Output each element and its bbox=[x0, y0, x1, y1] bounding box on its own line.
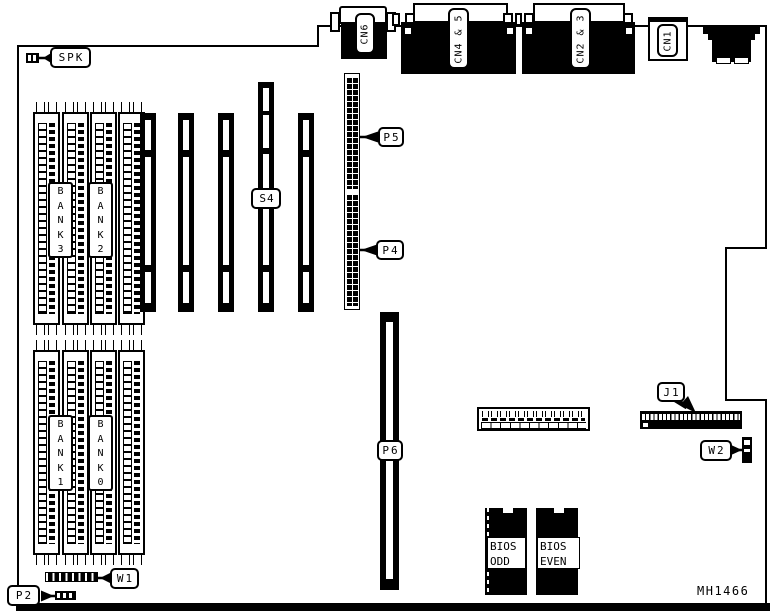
p2-header bbox=[55, 591, 76, 600]
p5-callout-arrow-icon bbox=[357, 132, 378, 143]
cn4-5-label: CN4 & 5 bbox=[448, 8, 469, 69]
cn4-5-pin-right bbox=[507, 28, 513, 34]
cn1-label: CN1 bbox=[657, 24, 678, 57]
board-bottom-edge bbox=[16, 603, 770, 611]
j1-pin1-marker bbox=[643, 423, 648, 427]
w2-jumper bbox=[742, 437, 752, 463]
cn2-3-pin-left bbox=[526, 28, 532, 34]
motherboard-diagram: CN6 CN4 & 5 CN2 & 3 CN1 SPK B A N K 3 bbox=[0, 0, 773, 616]
chip-notch bbox=[503, 508, 513, 513]
cn6-label: CN6 bbox=[355, 13, 375, 54]
simm-socket bbox=[118, 350, 145, 555]
cn2-3-label: CN2 & 3 bbox=[570, 8, 591, 69]
p2-label: P2 bbox=[7, 585, 40, 606]
p5-label: P5 bbox=[378, 127, 404, 147]
spk-header bbox=[26, 53, 39, 63]
expansion-slot bbox=[140, 113, 156, 312]
spk-label: SPK bbox=[50, 47, 91, 68]
expansion-slot bbox=[298, 113, 314, 312]
bios-even-label: BIOS EVEN bbox=[537, 537, 580, 569]
cn2-3-pin-right bbox=[626, 28, 632, 34]
edge-tab bbox=[392, 13, 400, 26]
w1-jumper-block bbox=[45, 572, 98, 582]
part-number: MH1466 bbox=[697, 584, 749, 598]
s4-label: S4 bbox=[251, 188, 281, 209]
bank1-label: B A N K 1 bbox=[48, 415, 73, 491]
p6-label: P6 bbox=[377, 440, 403, 461]
keyboard-pin-block bbox=[734, 55, 749, 64]
bank3-label: B A N K 3 bbox=[48, 182, 73, 258]
power-connector bbox=[477, 407, 590, 431]
expansion-slot bbox=[178, 113, 194, 312]
p4-label: P4 bbox=[376, 240, 404, 260]
j1-header bbox=[640, 411, 742, 429]
w2-label: W2 bbox=[700, 440, 732, 461]
expansion-slot bbox=[218, 113, 234, 312]
cn6-left-tab bbox=[330, 12, 340, 32]
j1-label: J1 bbox=[657, 382, 685, 402]
bank2-label: B A N K 2 bbox=[88, 182, 113, 258]
edge-tab bbox=[515, 13, 522, 26]
w1-callout-arrow-icon bbox=[96, 573, 111, 584]
bank0-label: B A N K 0 bbox=[88, 415, 113, 491]
p5-p4-pin-header bbox=[344, 73, 360, 310]
cn4-5-pin-left bbox=[405, 28, 411, 34]
w1-label: W1 bbox=[110, 568, 139, 589]
bios-odd-label: BIOS ODD bbox=[487, 537, 526, 569]
chip-notch bbox=[554, 508, 564, 513]
keyboard-pin-block bbox=[716, 55, 731, 64]
